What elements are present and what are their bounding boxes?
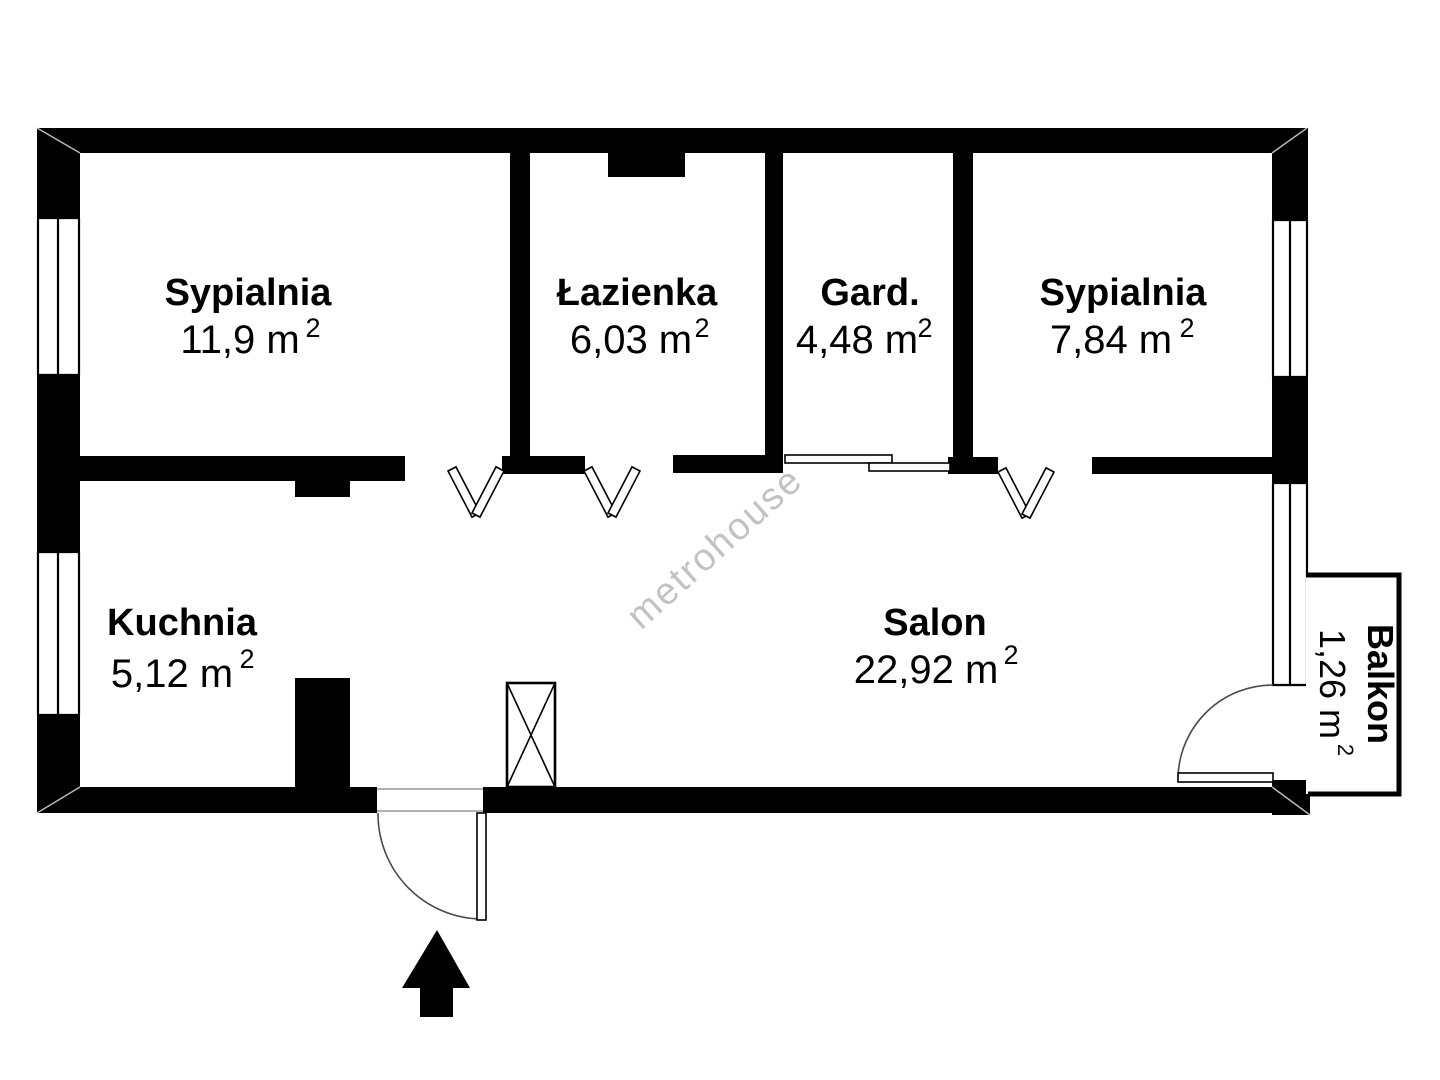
room-area-sup: 2 [1003, 640, 1018, 670]
room-name: Sypialnia [1040, 272, 1208, 314]
room-label-salon: Salon 22,92 m 2 [854, 602, 1019, 692]
room-area-sup: 2 [1179, 313, 1194, 343]
room-area-sup: 2 [239, 644, 254, 674]
room-area: 4,48 m [796, 318, 918, 362]
room-area: 7,84 m [1050, 318, 1172, 362]
wall-partition-bathroom-wardrobe [765, 153, 783, 473]
walls [37, 128, 1310, 815]
v-door-icon-bedroom1 [448, 467, 504, 517]
wall-kitchen-peninsula [295, 678, 350, 787]
v-door-icon-bathroom [584, 467, 640, 517]
room-area: 11,9 m [180, 318, 299, 362]
wall-left-middle [37, 375, 80, 552]
wall-chimney-stub [608, 153, 685, 177]
v-door-icon-bedroom2 [998, 468, 1054, 518]
entry-door-leaf [477, 813, 486, 920]
balcony-door-leaf [1178, 773, 1273, 782]
room-area-sup: 2 [694, 313, 709, 343]
window-salon-right [1272, 483, 1308, 685]
entry-door-swing-arc [378, 813, 481, 919]
window-bedroom1-left [37, 218, 80, 375]
room-area: 22,92 m [854, 648, 999, 692]
wall-corridor-stub3 [948, 457, 998, 474]
room-area: 6,03 m [570, 318, 692, 362]
room-name: Gard. [820, 272, 919, 314]
room-name: Łazienka [557, 272, 718, 314]
window-bedroom2-right [1272, 220, 1308, 377]
shaft-crossed-box-icon [507, 683, 555, 787]
room-name: Salon [883, 602, 986, 644]
wall-top [37, 128, 1307, 153]
wall-right-upper [1272, 128, 1308, 220]
wall-corridor-stub1 [502, 456, 585, 474]
room-name: Balkon [1360, 624, 1401, 744]
room-label-kuchnia: Kuchnia 5,12 m 2 [107, 602, 258, 696]
room-area: 1,26 m [1312, 629, 1353, 739]
wall-right-middle [1272, 377, 1308, 483]
watermark: metrohouse [619, 459, 811, 638]
wall-partition-bedroom1-bathroom [510, 153, 530, 456]
window-kitchen-left [37, 552, 80, 715]
floor-plan: metrohouse Sypialnia 11,9 m 2 Łazienka 6… [0, 0, 1440, 1080]
wall-kitchen-stub-top [295, 481, 350, 497]
wall-left-upper [37, 128, 80, 218]
room-name: Sypialnia [165, 272, 333, 314]
wall-bottom-left [37, 787, 377, 813]
room-name: Kuchnia [107, 602, 258, 644]
room-area-sup: 2 [1333, 744, 1358, 756]
room-label-sypialnia-1: Sypialnia 11,9 m 2 [165, 272, 333, 362]
floor-plan-page: metrohouse Sypialnia 11,9 m 2 Łazienka 6… [0, 0, 1440, 1080]
entry-door [377, 789, 486, 920]
balcony-door [1178, 685, 1273, 782]
room-label-sypialnia-2: Sypialnia 7,84 m 2 [1040, 272, 1208, 362]
room-area: 5,12 m [111, 652, 233, 696]
wall-bottom-right [483, 787, 1308, 813]
wall-corridor-right [1092, 457, 1272, 474]
balcony-door-swing-arc [1178, 685, 1273, 777]
wall-corridor-left [80, 456, 405, 481]
room-label-gard: Gard. 4,48 m 2 [796, 272, 933, 362]
room-label-lazienka: Łazienka 6,03 m 2 [557, 272, 718, 362]
entrance-arrow-icon [402, 930, 470, 1017]
wall-corridor-stub2 [673, 455, 770, 473]
room-area-sup: 2 [917, 313, 932, 343]
sliding-door-icon-wardrobe [785, 455, 950, 471]
room-area-sup: 2 [305, 313, 320, 343]
wall-partition-wardrobe-bedroom2 [953, 153, 973, 457]
